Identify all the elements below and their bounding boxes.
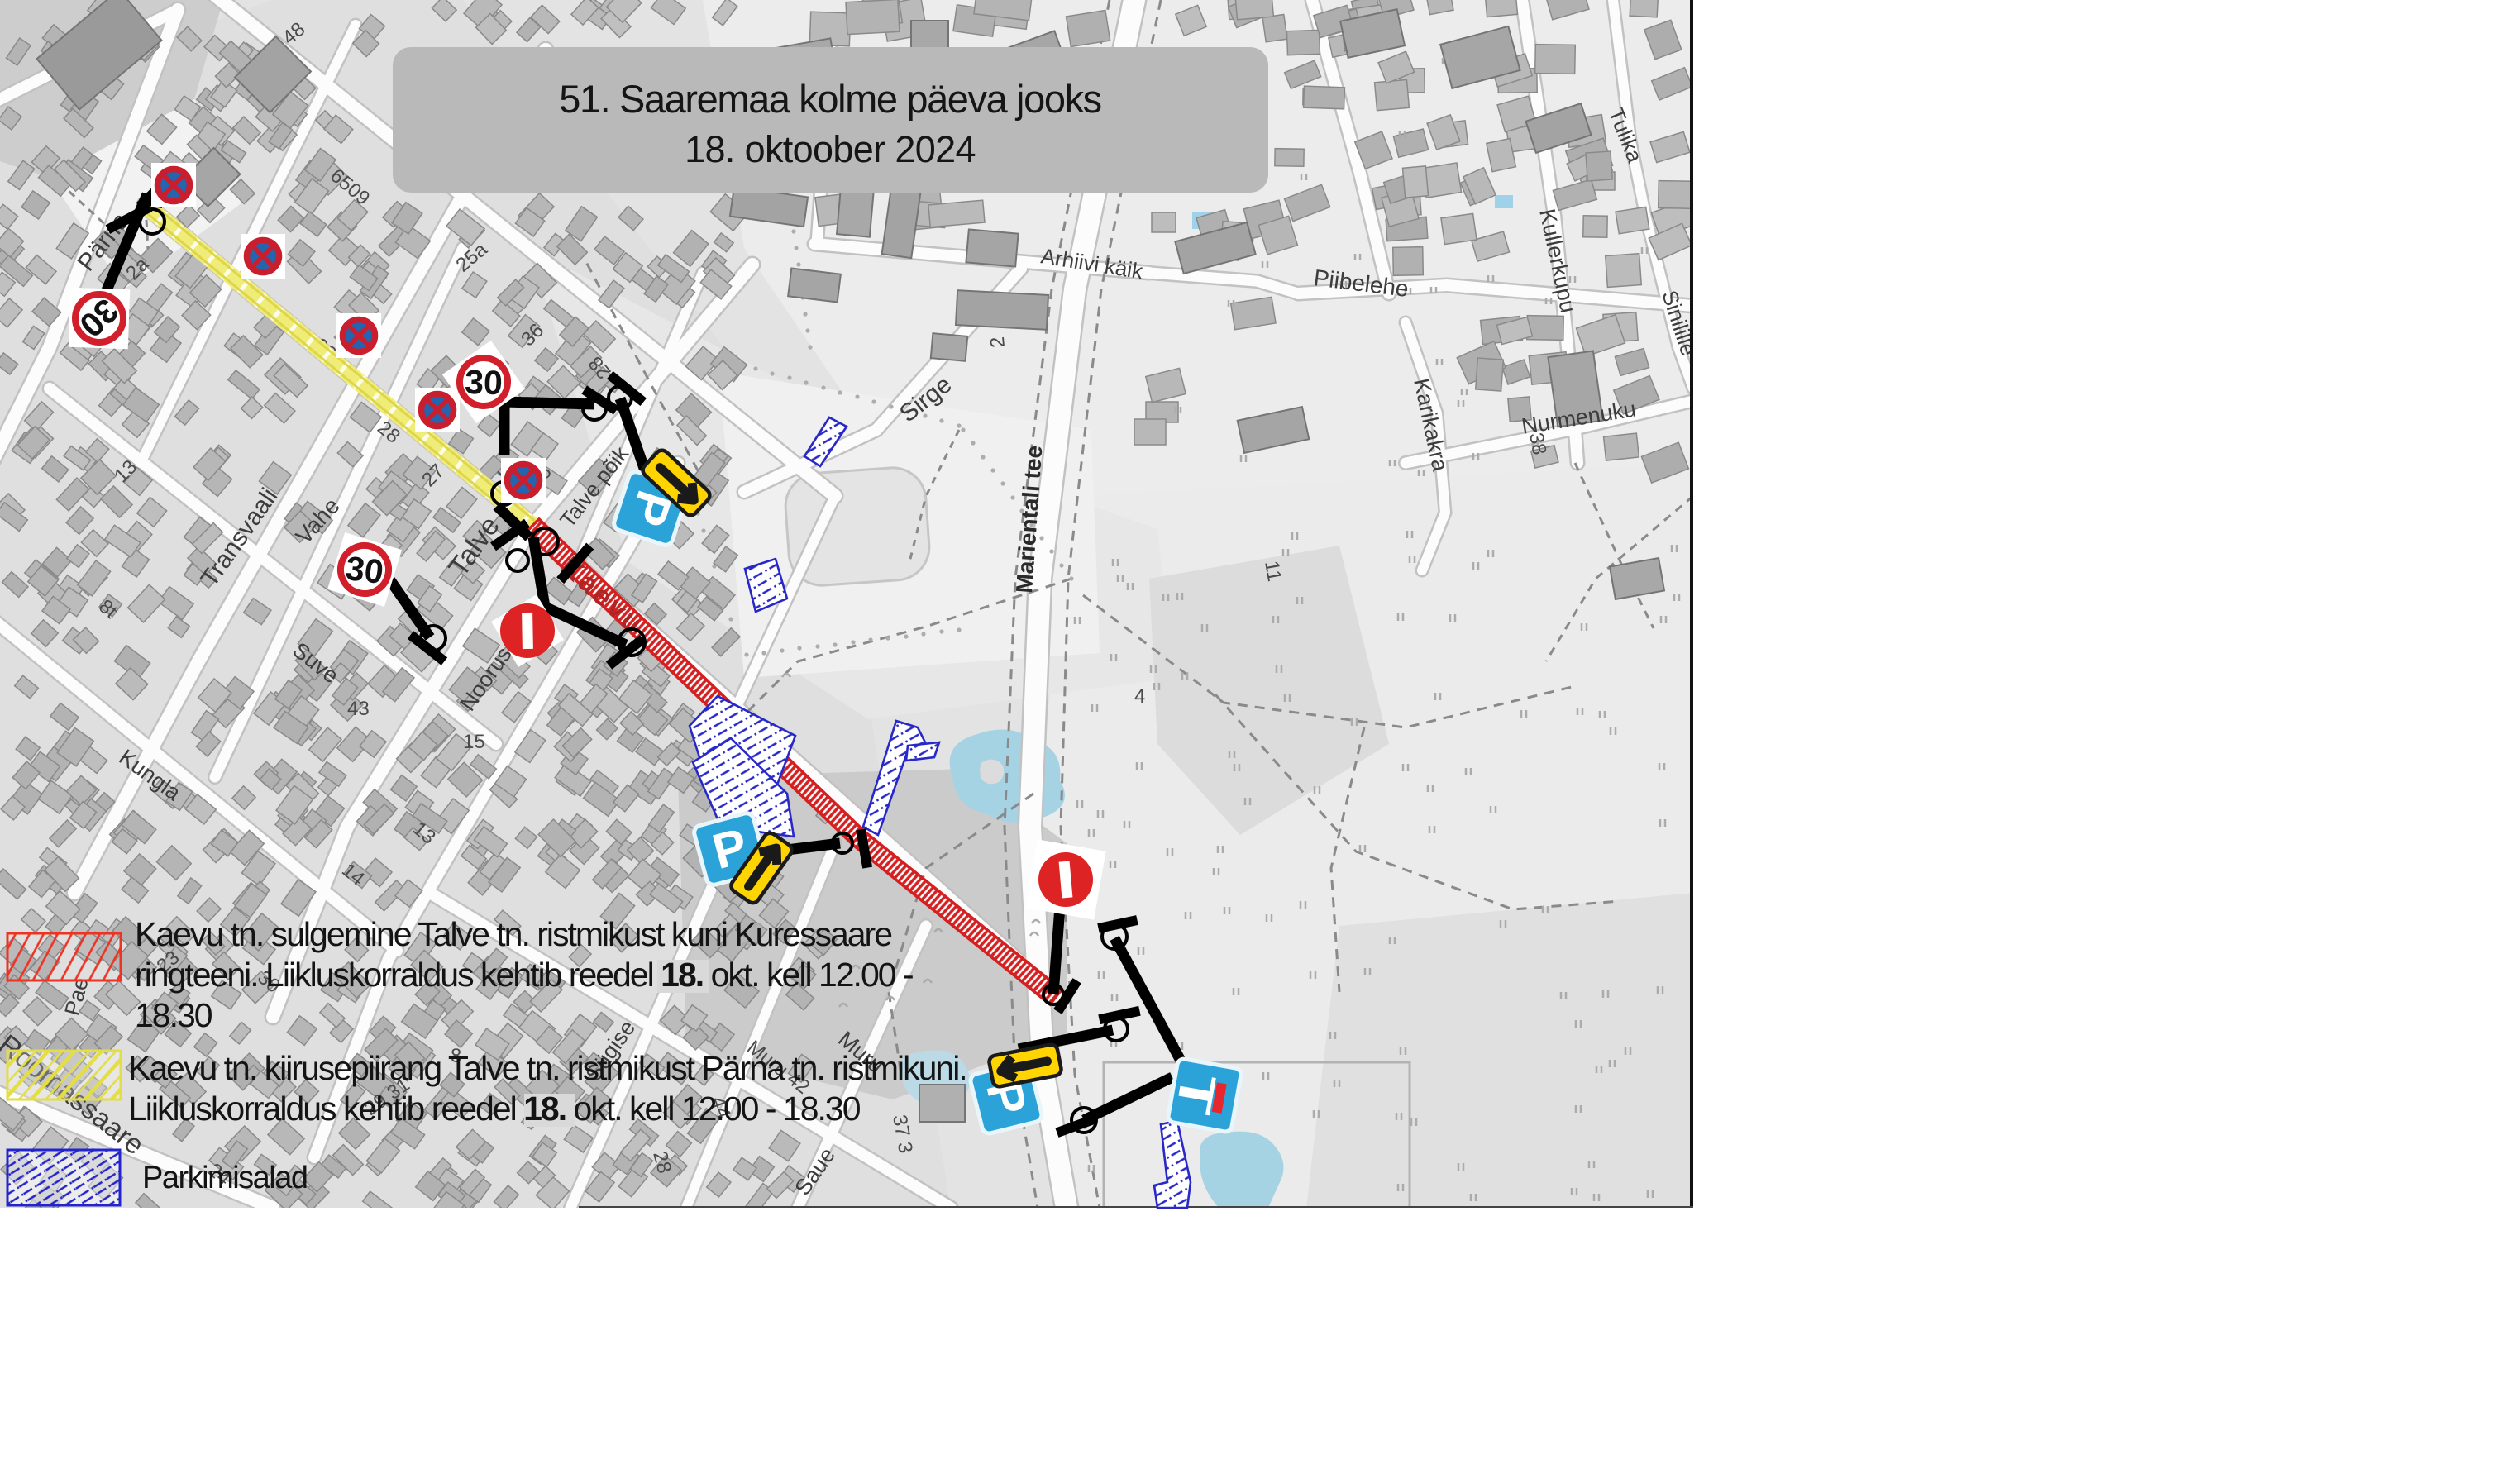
svg-text:Liikluskorraldus kehtib reede: Liikluskorraldus kehtib reedel 18. okt. … <box>128 1090 861 1128</box>
svg-text:Parkimisalad: Parkimisalad <box>142 1161 308 1195</box>
svg-text:4: 4 <box>1134 685 1145 708</box>
svg-text:18.30: 18.30 <box>135 996 212 1034</box>
svg-text:ringteeni. Liikluskorraldus ke: ringteeni. Liikluskorraldus kehtib reede… <box>135 956 913 994</box>
svg-text:Kaevu tn. kiirusepiirang Talve: Kaevu tn. kiirusepiirang Talve tn. ristm… <box>128 1049 966 1087</box>
svg-text:38: 38 <box>1525 431 1550 456</box>
svg-text:Kaevu tn. sulgemine Talve tn.: Kaevu tn. sulgemine Talve tn. ristmikust… <box>135 915 891 953</box>
svg-text:43: 43 <box>347 698 370 720</box>
svg-text:11: 11 <box>1260 559 1286 583</box>
svg-text:51. Saaremaa kolme päeva jooks: 51. Saaremaa kolme päeva jooks <box>559 77 1101 121</box>
svg-text:30: 30 <box>464 363 503 403</box>
svg-text:30: 30 <box>344 549 386 591</box>
svg-text:2: 2 <box>986 336 1009 349</box>
svg-text:15: 15 <box>463 731 485 753</box>
svg-text:18. oktoober 2024: 18. oktoober 2024 <box>685 128 976 170</box>
